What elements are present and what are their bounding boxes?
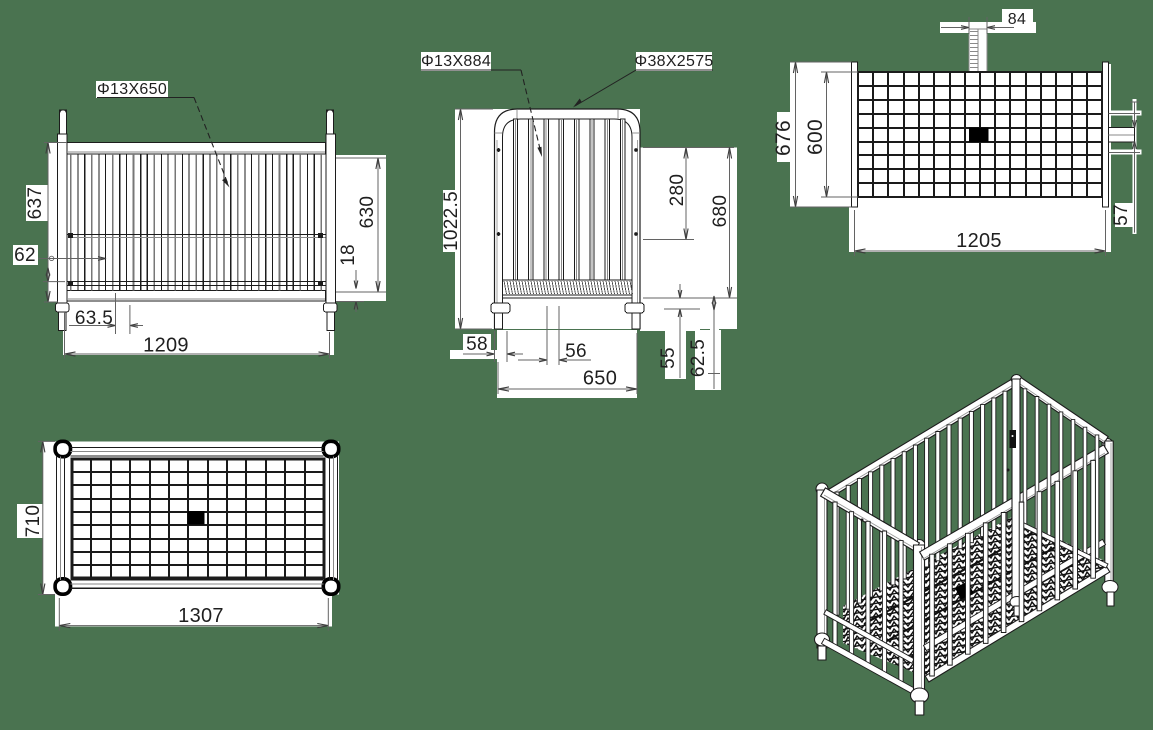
svg-text:62.5: 62.5 [688,339,709,377]
svg-text:680: 680 [710,195,731,228]
svg-text:56: 56 [565,341,587,362]
svg-text:58: 58 [466,334,488,355]
svg-text:62: 62 [14,245,36,266]
svg-text:Φ38X2575: Φ38X2575 [634,53,713,70]
svg-text:55: 55 [658,347,679,369]
svg-text:650: 650 [583,368,617,390]
svg-text:1205: 1205 [956,230,1002,252]
svg-text:84: 84 [1008,11,1026,28]
svg-text:Φ13X650: Φ13X650 [97,81,167,98]
svg-text:1022.5: 1022.5 [441,191,462,251]
svg-text:676: 676 [772,120,795,156]
svg-text:1209: 1209 [143,335,189,357]
svg-text:280: 280 [667,174,688,207]
svg-text:1307: 1307 [178,605,224,627]
svg-text:57: 57 [1111,204,1132,226]
svg-text:630: 630 [357,196,378,229]
svg-text:637: 637 [25,187,46,220]
svg-text:18: 18 [338,244,359,266]
svg-text:710: 710 [23,505,44,538]
svg-text:600: 600 [804,119,827,155]
svg-text:Φ13X884: Φ13X884 [421,53,491,70]
